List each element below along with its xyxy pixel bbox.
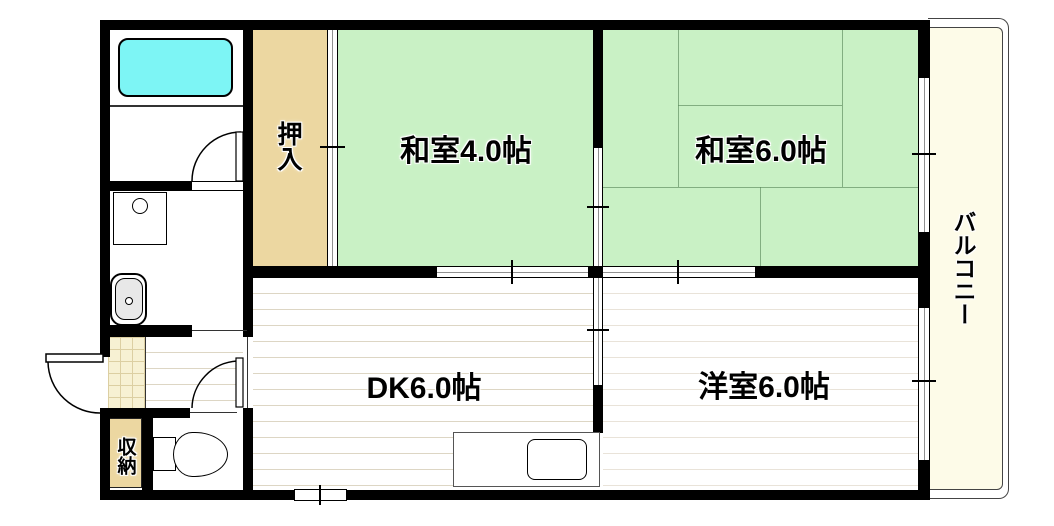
wall-dk-yoshitsu: [593, 385, 603, 433]
wall-right-a: [918, 20, 930, 78]
wall-mid-b: [588, 266, 603, 278]
dk-yoshitsu-sliding-door: [593, 278, 603, 385]
label-oshiire: 押入: [270, 121, 306, 171]
toilet-door-threshold-line: [190, 412, 237, 413]
wall-main-vertical-lower: [243, 408, 253, 490]
wall-right-c: [918, 460, 930, 500]
bathroom-door-threshold: [192, 181, 243, 191]
floor-plan: 和室4.0帖 和室6.0帖 DK6.0帖 洋室6.0帖 押入 バルコニー 収納: [0, 0, 1054, 526]
yoshitsu-balcony-window: [918, 308, 930, 460]
sliding-door-tick: [677, 260, 679, 284]
wall-top: [100, 20, 930, 30]
wall-toilet-west: [142, 418, 153, 490]
genkan-edge-line: [145, 337, 146, 408]
wall-mid-a: [243, 266, 437, 278]
tatami-seam: [760, 187, 761, 266]
label-balcony: バルコニー: [946, 211, 980, 326]
label-washitsu6: 和室6.0帖: [695, 126, 827, 170]
wall-main-vertical-upper: [243, 30, 253, 337]
hallway-floor: [146, 337, 243, 408]
fusuma-tick: [587, 206, 609, 208]
fusuma-tick: [320, 146, 345, 148]
washroom-hall-opening-line: [192, 330, 247, 331]
wall-bathroom-south: [100, 181, 192, 191]
label-washitsu4: 和室4.0帖: [400, 126, 532, 170]
washitsu4-dk-sliding-door: [437, 266, 588, 278]
tatami-seam: [842, 30, 843, 187]
wall-hall-south: [100, 408, 190, 418]
sliding-door-tick: [511, 260, 513, 284]
label-yoshitsu: 洋室6.0帖: [698, 362, 830, 406]
wall-washroom-south: [100, 325, 192, 337]
kitchen-sink: [527, 439, 587, 480]
window-tick: [319, 485, 321, 505]
washitsu6-yoshitsu-sliding-door: [603, 266, 755, 278]
window-tick: [912, 380, 936, 382]
oshiire-fusuma-door: [327, 30, 338, 266]
wall-mid-c: [755, 266, 930, 278]
sliding-door-tick: [587, 329, 609, 331]
entrance-door: [46, 354, 103, 413]
window-tick: [912, 153, 936, 155]
washitsu6-balcony-window: [918, 78, 930, 232]
tatami-seam: [678, 105, 842, 106]
washbasin-drain: [125, 297, 133, 305]
tatami-seam: [678, 30, 679, 187]
label-shuno: 収納: [112, 437, 139, 475]
wall-bottom: [100, 490, 930, 500]
label-dk: DK6.0帖: [366, 363, 481, 407]
bathtub: [118, 38, 233, 97]
wall-washitsu-divider: [593, 30, 603, 148]
bathroom-tub-step-line: [110, 105, 243, 107]
wall-left-lower: [100, 408, 110, 500]
entrance-genkan-tile: [108, 337, 145, 408]
hall-dk-opening-line: [247, 337, 248, 408]
dk-south-window: [294, 489, 347, 501]
washing-machine-drain: [132, 198, 148, 214]
